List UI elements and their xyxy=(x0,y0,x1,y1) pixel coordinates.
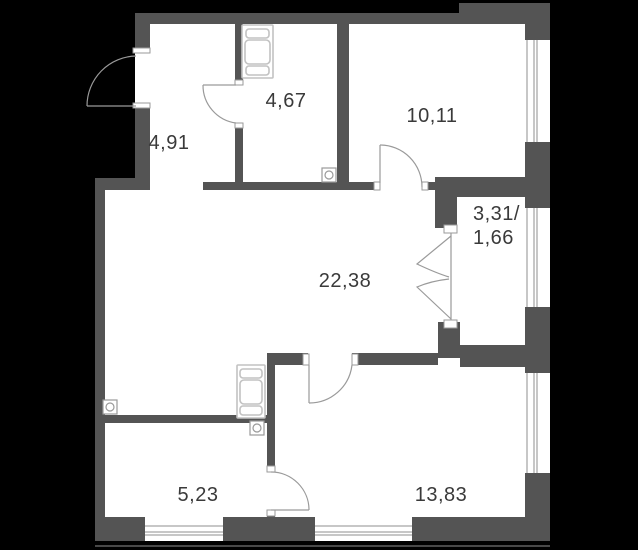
appliance-top xyxy=(246,29,269,38)
door-jamb xyxy=(267,466,275,472)
window-glass xyxy=(145,517,223,541)
wall-upper-section-bottom-left xyxy=(203,182,380,190)
window-glass xyxy=(315,517,412,541)
wall-kitchen-room-upper xyxy=(267,358,275,472)
door-jamb xyxy=(303,354,309,365)
window-room-right xyxy=(525,373,550,473)
window-room-bottom xyxy=(315,517,412,541)
door-opening xyxy=(135,50,150,106)
wall-top-right-block xyxy=(459,3,550,24)
wall-bottom-middle xyxy=(223,517,315,541)
wall-left-above-entry xyxy=(135,13,150,50)
appliance-middle xyxy=(245,40,270,64)
vent-icon-bathroom xyxy=(322,168,336,182)
door-jamb xyxy=(267,510,275,516)
wall-right-between-windows-1 xyxy=(525,142,550,208)
floor-plan-screenshot: 4,91 4,67 10,11 3,31/ 1,66 22,38 5,23 13… xyxy=(0,0,638,550)
window-balcony-right xyxy=(525,208,550,307)
wall-balcony-top xyxy=(435,177,525,197)
wall-hallway-bathroom-lower xyxy=(235,128,243,190)
label-hallway-area: 4,91 xyxy=(149,132,190,154)
door-jamb xyxy=(235,80,243,85)
wall-right-between-windows-2 xyxy=(525,307,550,373)
appliance-icon-living xyxy=(237,365,265,418)
vent-icon-living xyxy=(103,400,117,414)
wall-left-lower xyxy=(95,178,105,541)
wall-bottom-right xyxy=(412,517,550,541)
vent-circle xyxy=(325,171,333,179)
floor-areas xyxy=(105,24,525,517)
wall-top xyxy=(135,13,459,24)
door-jamb xyxy=(374,182,380,190)
label-room-area: 13,83 xyxy=(415,484,468,506)
wall-living-room-divider-right xyxy=(352,353,438,365)
label-kitchen-area: 5,23 xyxy=(178,484,219,506)
wall-right-above-bedroom-window xyxy=(525,24,550,40)
door-jamb xyxy=(444,225,457,233)
floor-plan: 4,91 4,67 10,11 3,31/ 1,66 22,38 5,23 13… xyxy=(0,0,638,550)
appliance-bottom xyxy=(246,66,269,75)
door-jamb xyxy=(235,123,243,128)
appliance-icon-bathroom xyxy=(242,25,273,78)
vent-circle xyxy=(106,403,114,411)
label-bathroom-area: 4,67 xyxy=(266,90,307,112)
door-jamb xyxy=(422,182,428,190)
label-balcony-area-line1: 3,31/ xyxy=(473,203,520,225)
door-jamb xyxy=(444,320,457,328)
window-bedroom-right xyxy=(525,40,550,142)
appliance-middle xyxy=(240,380,262,404)
label-living-area: 22,38 xyxy=(319,270,372,292)
door-jamb xyxy=(133,48,150,53)
wall-balcony-bottom xyxy=(460,345,525,367)
appliance-bottom xyxy=(240,406,262,415)
vent-icon-kitchen xyxy=(250,421,264,435)
label-bedroom-area: 10,11 xyxy=(406,105,457,127)
pier-balcony-upper xyxy=(435,197,457,228)
vent-circle xyxy=(253,424,261,432)
window-kitchen-bottom xyxy=(145,517,223,541)
wall-bathroom-bedroom xyxy=(337,24,349,190)
door-jamb xyxy=(352,354,358,365)
label-balcony-area-line2: 1,66 xyxy=(473,227,514,249)
appliance-top xyxy=(240,369,262,378)
